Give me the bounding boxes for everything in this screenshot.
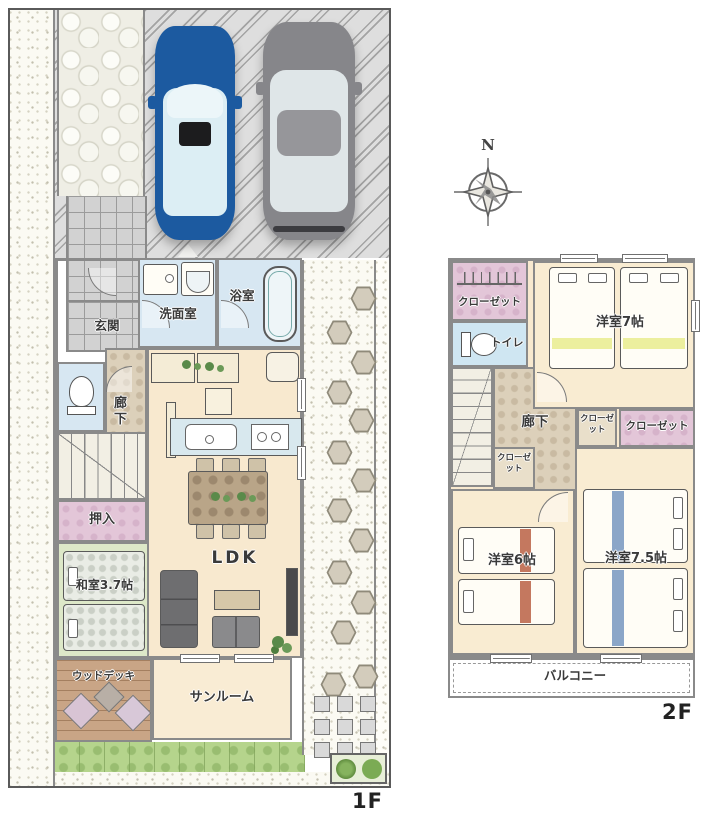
washing-machine-tub [186, 271, 210, 293]
window [234, 654, 274, 663]
bedroom6-bed2-stripe [520, 581, 531, 623]
square-paver-grid [314, 696, 376, 758]
window [691, 300, 700, 332]
room-washitsu-label: 和室3.7帖 [58, 578, 151, 593]
room-yokushitsu-label: 浴室 [219, 288, 265, 304]
counter-plant-2 [205, 362, 214, 371]
tv-board [286, 568, 298, 636]
room-rouka-2f-label: 廊下 [506, 414, 564, 431]
car-gray-mirror-left [256, 82, 265, 95]
paver [337, 696, 353, 712]
stove-burner-2 [271, 432, 281, 442]
bedroom6-pillow [463, 590, 474, 613]
washitsu-pillow-2 [68, 619, 78, 638]
room-genkan-label: 玄関 [70, 318, 144, 334]
room-toilet-1f [57, 362, 105, 432]
room-closet-nw [451, 261, 528, 321]
sink-faucet [165, 274, 174, 283]
lawn-strip [55, 742, 305, 772]
paver [360, 696, 376, 712]
room-senmenshitsu-label: 洗面室 [141, 306, 215, 322]
room-bedroom6-label: 洋室6帖 [462, 553, 562, 569]
bedroom7-pillow [588, 273, 607, 283]
counter-plant-1 [182, 360, 191, 369]
bedroom75-pillow [673, 497, 683, 519]
car-blue-windshield [167, 84, 223, 118]
window [297, 446, 306, 480]
window [180, 654, 220, 663]
stove-burner-1 [257, 432, 267, 442]
room-closet-mid-label: クローゼット [579, 414, 615, 436]
paver [314, 696, 330, 712]
bush [336, 759, 356, 779]
paver [360, 719, 376, 735]
paver [314, 719, 330, 735]
car-gray-mirror-right [353, 82, 362, 95]
bedroom7-bed2-stripe [623, 338, 685, 349]
car-blue [155, 26, 235, 240]
bedroom7-bed1-stripe [552, 338, 612, 349]
stone-approach-path [57, 10, 145, 196]
room-rouka-1f-label: 廊下 [112, 396, 129, 429]
washroom-sink [143, 264, 178, 295]
room-ldk-label: LDK [204, 548, 266, 569]
paver [337, 719, 353, 735]
floor-label-2f: 2F [662, 700, 693, 724]
car-gray [263, 22, 355, 240]
balcony-label: バルコニー [528, 668, 622, 684]
car-gray-roof [277, 110, 341, 156]
dining-chair [248, 524, 266, 539]
dining-chair [222, 524, 240, 539]
room-closet-stairs-label: クローゼット [496, 453, 532, 475]
kitchen-counter-2 [197, 353, 239, 383]
room-toilet-2f-label: トイレ [487, 336, 527, 350]
car-gray-bumper [273, 226, 345, 232]
stairs-2f [451, 367, 493, 487]
table-plant-2 [237, 492, 246, 501]
floor-label-1f: 1F [352, 789, 383, 813]
bedroom7-pillow [660, 273, 679, 283]
compass-north-label: N [452, 136, 524, 155]
floor-plan-canvas: 玄関 洗面室 浴室 廊下 押入 和室3.7帖 [0, 0, 701, 814]
bedroom75-pillow [673, 528, 683, 550]
kitchen-work-table [205, 388, 232, 415]
toilet-tank-2f [461, 332, 471, 357]
compass-rose [452, 156, 524, 228]
sofa-main [160, 570, 198, 648]
car-blue-sunroof [179, 122, 211, 146]
window [560, 254, 598, 263]
washing-machine [181, 262, 214, 296]
window [297, 378, 306, 412]
stairs-1f [57, 432, 147, 500]
bedroom7-pillow [629, 273, 648, 283]
wood-deck-label: ウッドデッキ [56, 670, 151, 683]
table-plant-1 [211, 492, 220, 501]
sofa-second [212, 616, 260, 648]
side-path-left [10, 10, 55, 786]
kitchen-island [170, 418, 302, 456]
compass: N [452, 136, 524, 230]
room-closet-nw-label: クローゼット [451, 296, 528, 309]
coffee-table [214, 590, 260, 610]
car-blue-mirror-right [233, 96, 242, 109]
room-closet-east-label: クローゼット [619, 420, 695, 433]
dining-chair [196, 524, 214, 539]
planter-box [330, 753, 387, 784]
room-bedroom75-label: 洋室7.5帖 [585, 551, 687, 567]
room-sunroom-label: サンルーム [158, 690, 286, 706]
dining-table [188, 471, 268, 525]
room-oshiire-label: 押入 [60, 512, 144, 528]
window [622, 254, 668, 263]
window [600, 654, 642, 663]
bedroom75-bed2-stripe [612, 570, 624, 646]
window [490, 654, 532, 663]
room-bedroom7-label: 洋室7帖 [572, 315, 668, 331]
car-blue-mirror-left [148, 96, 157, 109]
bathtub-inner [268, 271, 292, 337]
refrigerator [266, 352, 299, 382]
bedroom7-pillow [558, 273, 577, 283]
ldk-plant [272, 636, 284, 648]
bedroom75-pillow [673, 578, 683, 600]
toilet-base-1f [67, 406, 96, 415]
island-sink-drain [205, 435, 214, 444]
bathtub [263, 266, 297, 342]
closet-hanger-rod [457, 272, 522, 285]
bedroom75-pillow [673, 610, 683, 632]
toilet-bowl-1f [69, 376, 94, 407]
paver [314, 742, 330, 758]
